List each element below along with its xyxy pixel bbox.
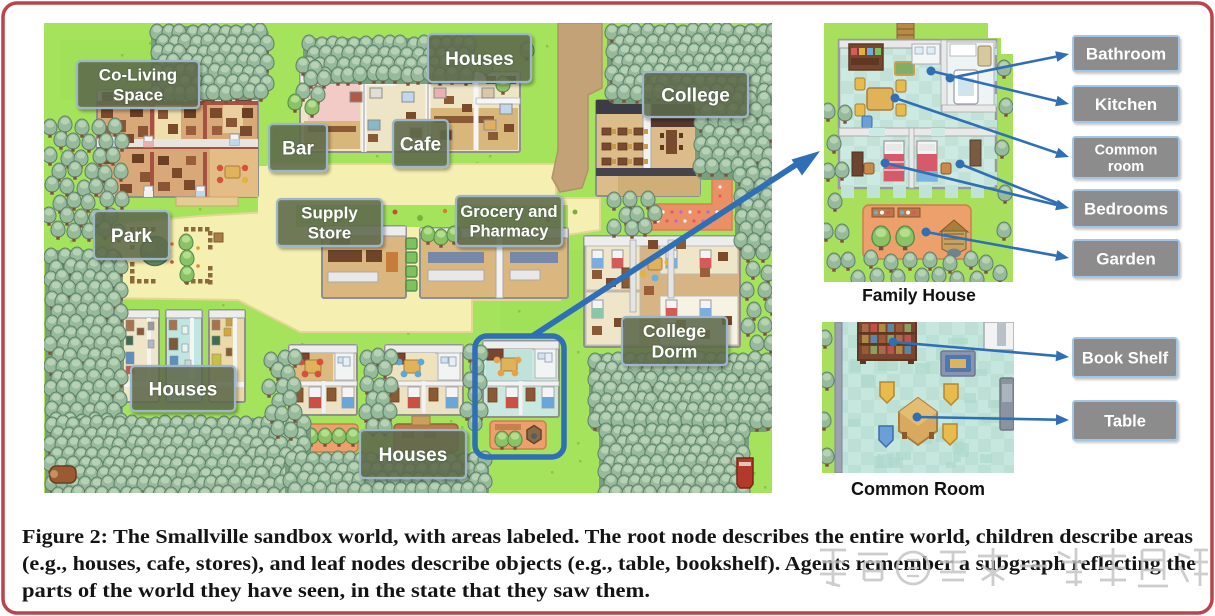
svg-text:Bar: Bar — [282, 138, 314, 159]
svg-text:Book Shelf: Book Shelf — [1082, 349, 1169, 367]
svg-text:Houses: Houses — [379, 445, 448, 466]
svg-text:Space: Space — [113, 86, 163, 105]
svg-text:(e.g., houses, cafe, stores),: (e.g., houses, cafe, stores), and leaf n… — [22, 553, 1196, 575]
svg-text:Grocery and: Grocery and — [460, 203, 557, 221]
svg-text:Pharmacy: Pharmacy — [470, 223, 550, 241]
svg-text:Garden: Garden — [1096, 250, 1156, 269]
svg-text:Co-Living: Co-Living — [99, 66, 177, 85]
svg-text:Table: Table — [1104, 412, 1146, 430]
svg-text:Cafe: Cafe — [400, 134, 441, 155]
svg-text:Supply: Supply — [301, 204, 358, 223]
svg-text:Bathroom: Bathroom — [1086, 45, 1166, 64]
svg-text:Dorm: Dorm — [652, 342, 698, 362]
svg-text:Common Room: Common Room — [851, 479, 985, 499]
svg-text:Bedrooms: Bedrooms — [1084, 200, 1168, 219]
svg-text:room: room — [1108, 159, 1144, 175]
svg-text:Kitchen: Kitchen — [1095, 95, 1157, 114]
svg-text:College: College — [643, 321, 706, 341]
svg-text:Family House: Family House — [862, 285, 976, 305]
svg-text:Houses: Houses — [149, 379, 218, 400]
svg-text:Park: Park — [111, 226, 153, 247]
svg-text:Common: Common — [1095, 143, 1158, 159]
svg-text:College: College — [661, 85, 730, 106]
svg-text:Figure 2: The Smallville sandb: Figure 2: The Smallville sandbox world, … — [22, 526, 1193, 548]
svg-text:parts of the world they have s: parts of the world they have seen, in th… — [22, 580, 650, 602]
svg-text:Store: Store — [308, 224, 351, 243]
svg-text:Houses: Houses — [445, 49, 514, 70]
